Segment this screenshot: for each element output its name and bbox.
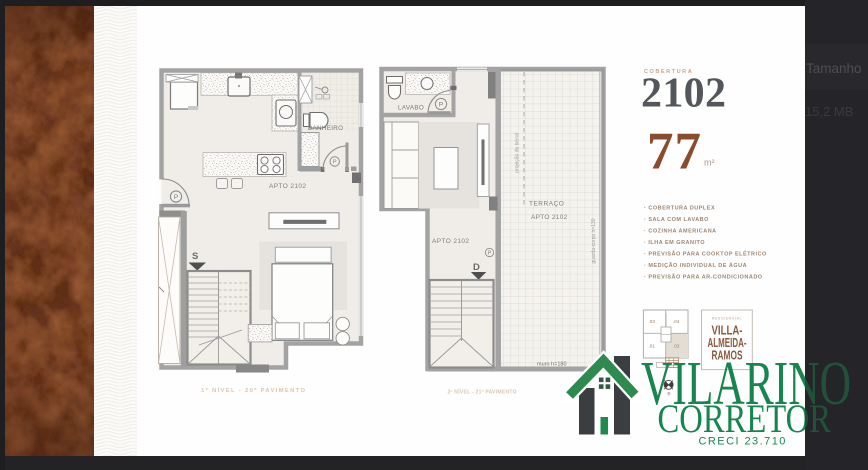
svg-text:CRECI 23.710: CRECI 23.710 (699, 436, 787, 448)
svg-text:S: S (192, 251, 198, 262)
svg-text:· ILHA EM GRANITO: · ILHA EM GRANITO (644, 240, 705, 246)
svg-text:· PREVISÃO PARA AR-CONDICIONAD: · PREVISÃO PARA AR-CONDICIONADO (644, 274, 763, 281)
svg-text:LAVABO: LAVABO (398, 105, 424, 112)
svg-text:BANHEIRO: BANHEIRO (308, 125, 343, 132)
svg-text:muro h=180: muro h=180 (537, 362, 567, 368)
svg-text:· MEDIÇÃO INDIVIDUAL DE ÁGUA: · MEDIÇÃO INDIVIDUAL DE ÁGUA (644, 262, 747, 269)
svg-text:2102: 2102 (641, 71, 726, 117)
svg-text:RESIDENCIAL: RESIDENCIAL (712, 317, 742, 321)
svg-text:APTO 2102: APTO 2102 (269, 183, 306, 190)
svg-text:P: P (333, 160, 337, 166)
svg-text:· COZINHA AMERICANA: · COZINHA AMERICANA (644, 229, 717, 235)
svg-text:projeção do beiral: projeção do beiral (515, 133, 521, 173)
svg-text:77: 77 (647, 123, 701, 181)
svg-text:.04: .04 (673, 319, 680, 324)
svg-text:m²: m² (704, 158, 715, 168)
svg-text:1º NÍVEL - 20º PAVIMENTO: 1º NÍVEL - 20º PAVIMENTO (201, 386, 305, 394)
svg-text:· COBERTURA DUPLEX: · COBERTURA DUPLEX (644, 206, 715, 212)
svg-text:· PREVISÃO PARA COOKTOP ELÉTRI: · PREVISÃO PARA COOKTOP ELÉTRICO (644, 250, 767, 258)
svg-text:APTO 2102: APTO 2102 (432, 238, 469, 245)
svg-text:TERRAÇO: TERRAÇO (529, 201, 564, 208)
svg-text:guarda-corpo h=130: guarda-corpo h=130 (591, 218, 597, 263)
svg-text:· SALA COM LAVABO: · SALA COM LAVABO (644, 217, 709, 223)
svg-text:2º NÍVEL - 21º PAVIMENTO: 2º NÍVEL - 21º PAVIMENTO (448, 388, 517, 396)
svg-text:.03: .03 (649, 319, 656, 324)
svg-text:D: D (473, 262, 480, 273)
svg-text:P: P (439, 101, 443, 108)
svg-text:P: P (174, 194, 178, 201)
svg-text:APTO 2102: APTO 2102 (531, 214, 568, 221)
